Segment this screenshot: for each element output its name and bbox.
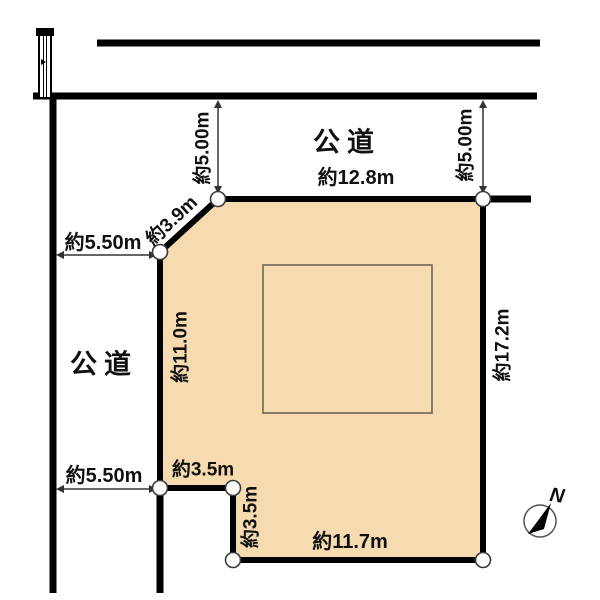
bottom-edge-dimension: 約11.7m [312,532,388,552]
utility-pole-icon [36,28,54,98]
left-road-label: 公道 [70,352,138,379]
land-plot-diagram: 公道 約12.8m 約5.00m 約5.00m 約3.9m 約5.50m 約5.… [0,0,600,600]
left-road-width-upper-dimension: 約5.50m [65,233,142,253]
notch-side-dimension: 約3.5m [242,486,261,548]
dimension-line-top-road-width-left [214,100,222,194]
boundary-point [226,481,241,496]
boundary-point [153,481,168,496]
dimension-line-top-road-width-right [479,100,487,194]
compass-north-label: N [548,485,565,507]
top-road-width-left-dimension: 約5.00m [194,112,213,185]
boundary-point [226,553,241,568]
top-road-width-right-dimension: 約5.00m [457,109,476,182]
left-edge-dimension: 約11.0m [172,311,191,383]
boundary-point [211,192,226,207]
left-road-width-lower-dimension: 約5.50m [66,466,143,486]
plot-drawing [0,0,600,600]
compass-icon [524,503,556,537]
boundary-point [476,553,491,568]
right-edge-dimension: 約17.2m [494,309,513,382]
top-edge-dimension: 約12.8m [318,168,395,188]
parcel-polygon [160,199,483,560]
notch-top-dimension: 約3.5m [172,461,234,480]
boundary-point [476,192,491,207]
top-road-label: 公道 [313,130,381,157]
